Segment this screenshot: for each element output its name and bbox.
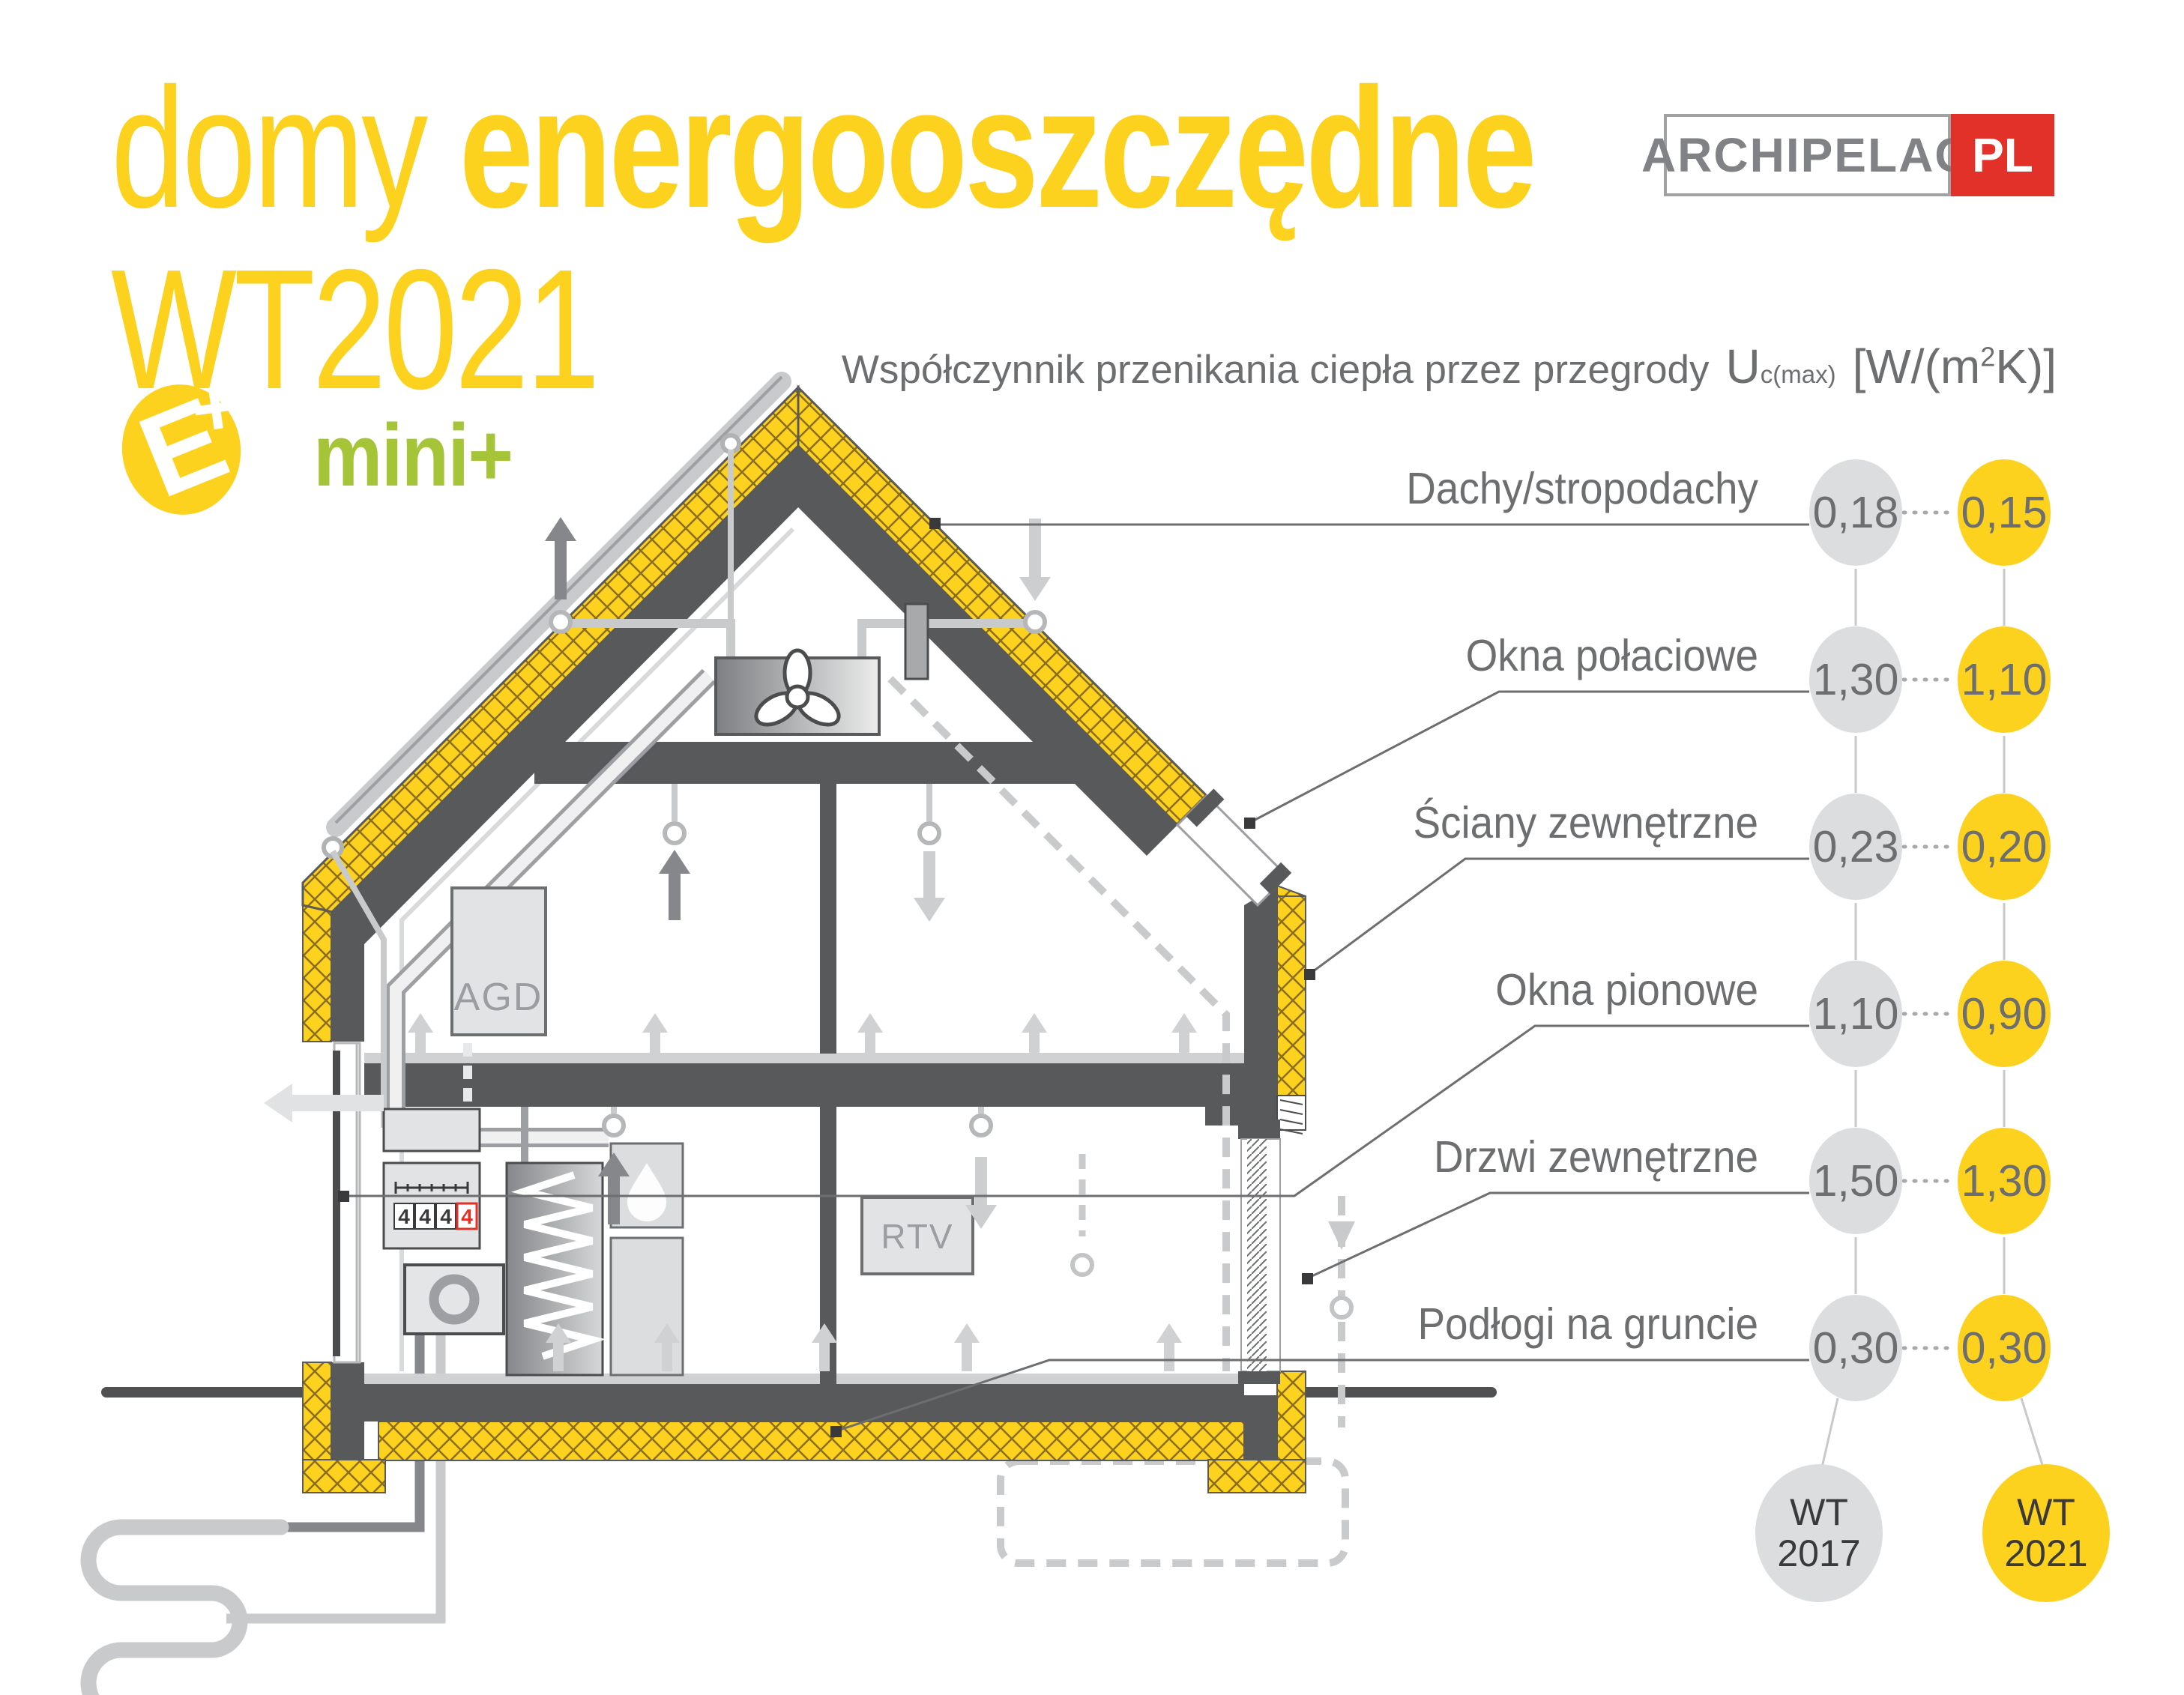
value-2021-okna-polaciowe: 1,10 [1958,626,2051,733]
value-2021-dachy: 0,15 [1958,459,2051,566]
heat-pump [405,1265,504,1334]
title-word-domy: domy [111,53,425,244]
svg-text:4: 4 [440,1205,452,1228]
svg-text:AGD: AGD [454,976,543,1019]
value-2021-drzwi: 1,30 [1958,1128,2051,1234]
title-word-energooszczedne: energooszczędne [425,53,1533,244]
media-rtv-box: RTV [862,1197,973,1274]
row-label-podlogi: Podłogi na gruncie [1196,1279,1758,1350]
electrical-panel: 4 4 4 4 [384,1109,480,1248]
u-value-header: Współczynnik przenikania ciepła przez pr… [842,339,2057,394]
page-title-line1: domy energooszczędne [111,63,1534,234]
intake-down-arrowhead [1328,1221,1355,1250]
supply-drop-terminal [1073,1255,1092,1275]
value-2017-okna-polaciowe: 1,30 [1809,626,1902,733]
row-dotted-links [1904,513,1956,1348]
floor-slab [364,1374,1244,1460]
value-2021-sciany: 0,20 [1958,794,2051,900]
appliance-agd-box: AGD [452,888,546,1035]
row-label-okna-pionowe: Okna pionowe [1196,945,1758,1015]
value-2021-okna-pionowe: 0,90 [1958,961,2051,1067]
value-2017-dachy: 0,18 [1809,459,1902,566]
svg-text:4: 4 [398,1205,410,1228]
u-unit: [W/(m2K)] [1853,339,2057,394]
infographic-canvas: AGD 4 4 4 4 RTV [0,0,2184,1695]
row-label-drzwi: Drzwi zewnętrzne [1196,1112,1758,1182]
value-2017-podlogi: 0,30 [1809,1295,1902,1401]
left-window [333,1043,360,1362]
row-label-dachy: Dachy/stropodachy [1196,444,1758,514]
archipelag-logo[interactable]: ARCHIPELAG PL [1664,114,2054,196]
legend-wt2021: WT 2021 [1982,1464,2110,1602]
svg-text:4: 4 [419,1205,431,1228]
value-2017-drzwi: 1,50 [1809,1128,1902,1234]
legend-wt2021-line1: WT [2017,1492,2075,1533]
u-header-text: Współczynnik przenikania ciepła przez pr… [842,347,1710,393]
value-2017-okna-pionowe: 1,10 [1809,961,1902,1067]
energy-meter-digits: 4 4 4 4 [394,1203,477,1229]
value-2021-podlogi: 0,30 [1958,1295,2051,1401]
legend-wt2017: WT 2017 [1755,1464,1883,1602]
attic-post [820,784,836,1054]
u-symbol: Uc(max) [1726,339,1836,394]
standard-mini-label: mini+ [313,405,512,507]
legend-wt2021-line2: 2021 [2004,1533,2087,1574]
svg-text:RTV: RTV [881,1217,953,1256]
archipelag-logo-pl: PL [1951,114,2054,196]
value-2017-sciany: 0,23 [1809,794,1902,900]
row-label-sciany: Ściany zewnętrzne [1196,778,1758,848]
legend-wt2017-line2: 2017 [1777,1533,1860,1574]
svg-text:4: 4 [461,1205,473,1228]
row-label-okna-polaciowe: Okna połaciowe [1196,611,1758,681]
archipelag-logo-name: ARCHIPELAG [1664,114,1951,196]
legend-wt2017-line1: WT [1790,1492,1848,1533]
storey-slab [364,1053,1244,1107]
